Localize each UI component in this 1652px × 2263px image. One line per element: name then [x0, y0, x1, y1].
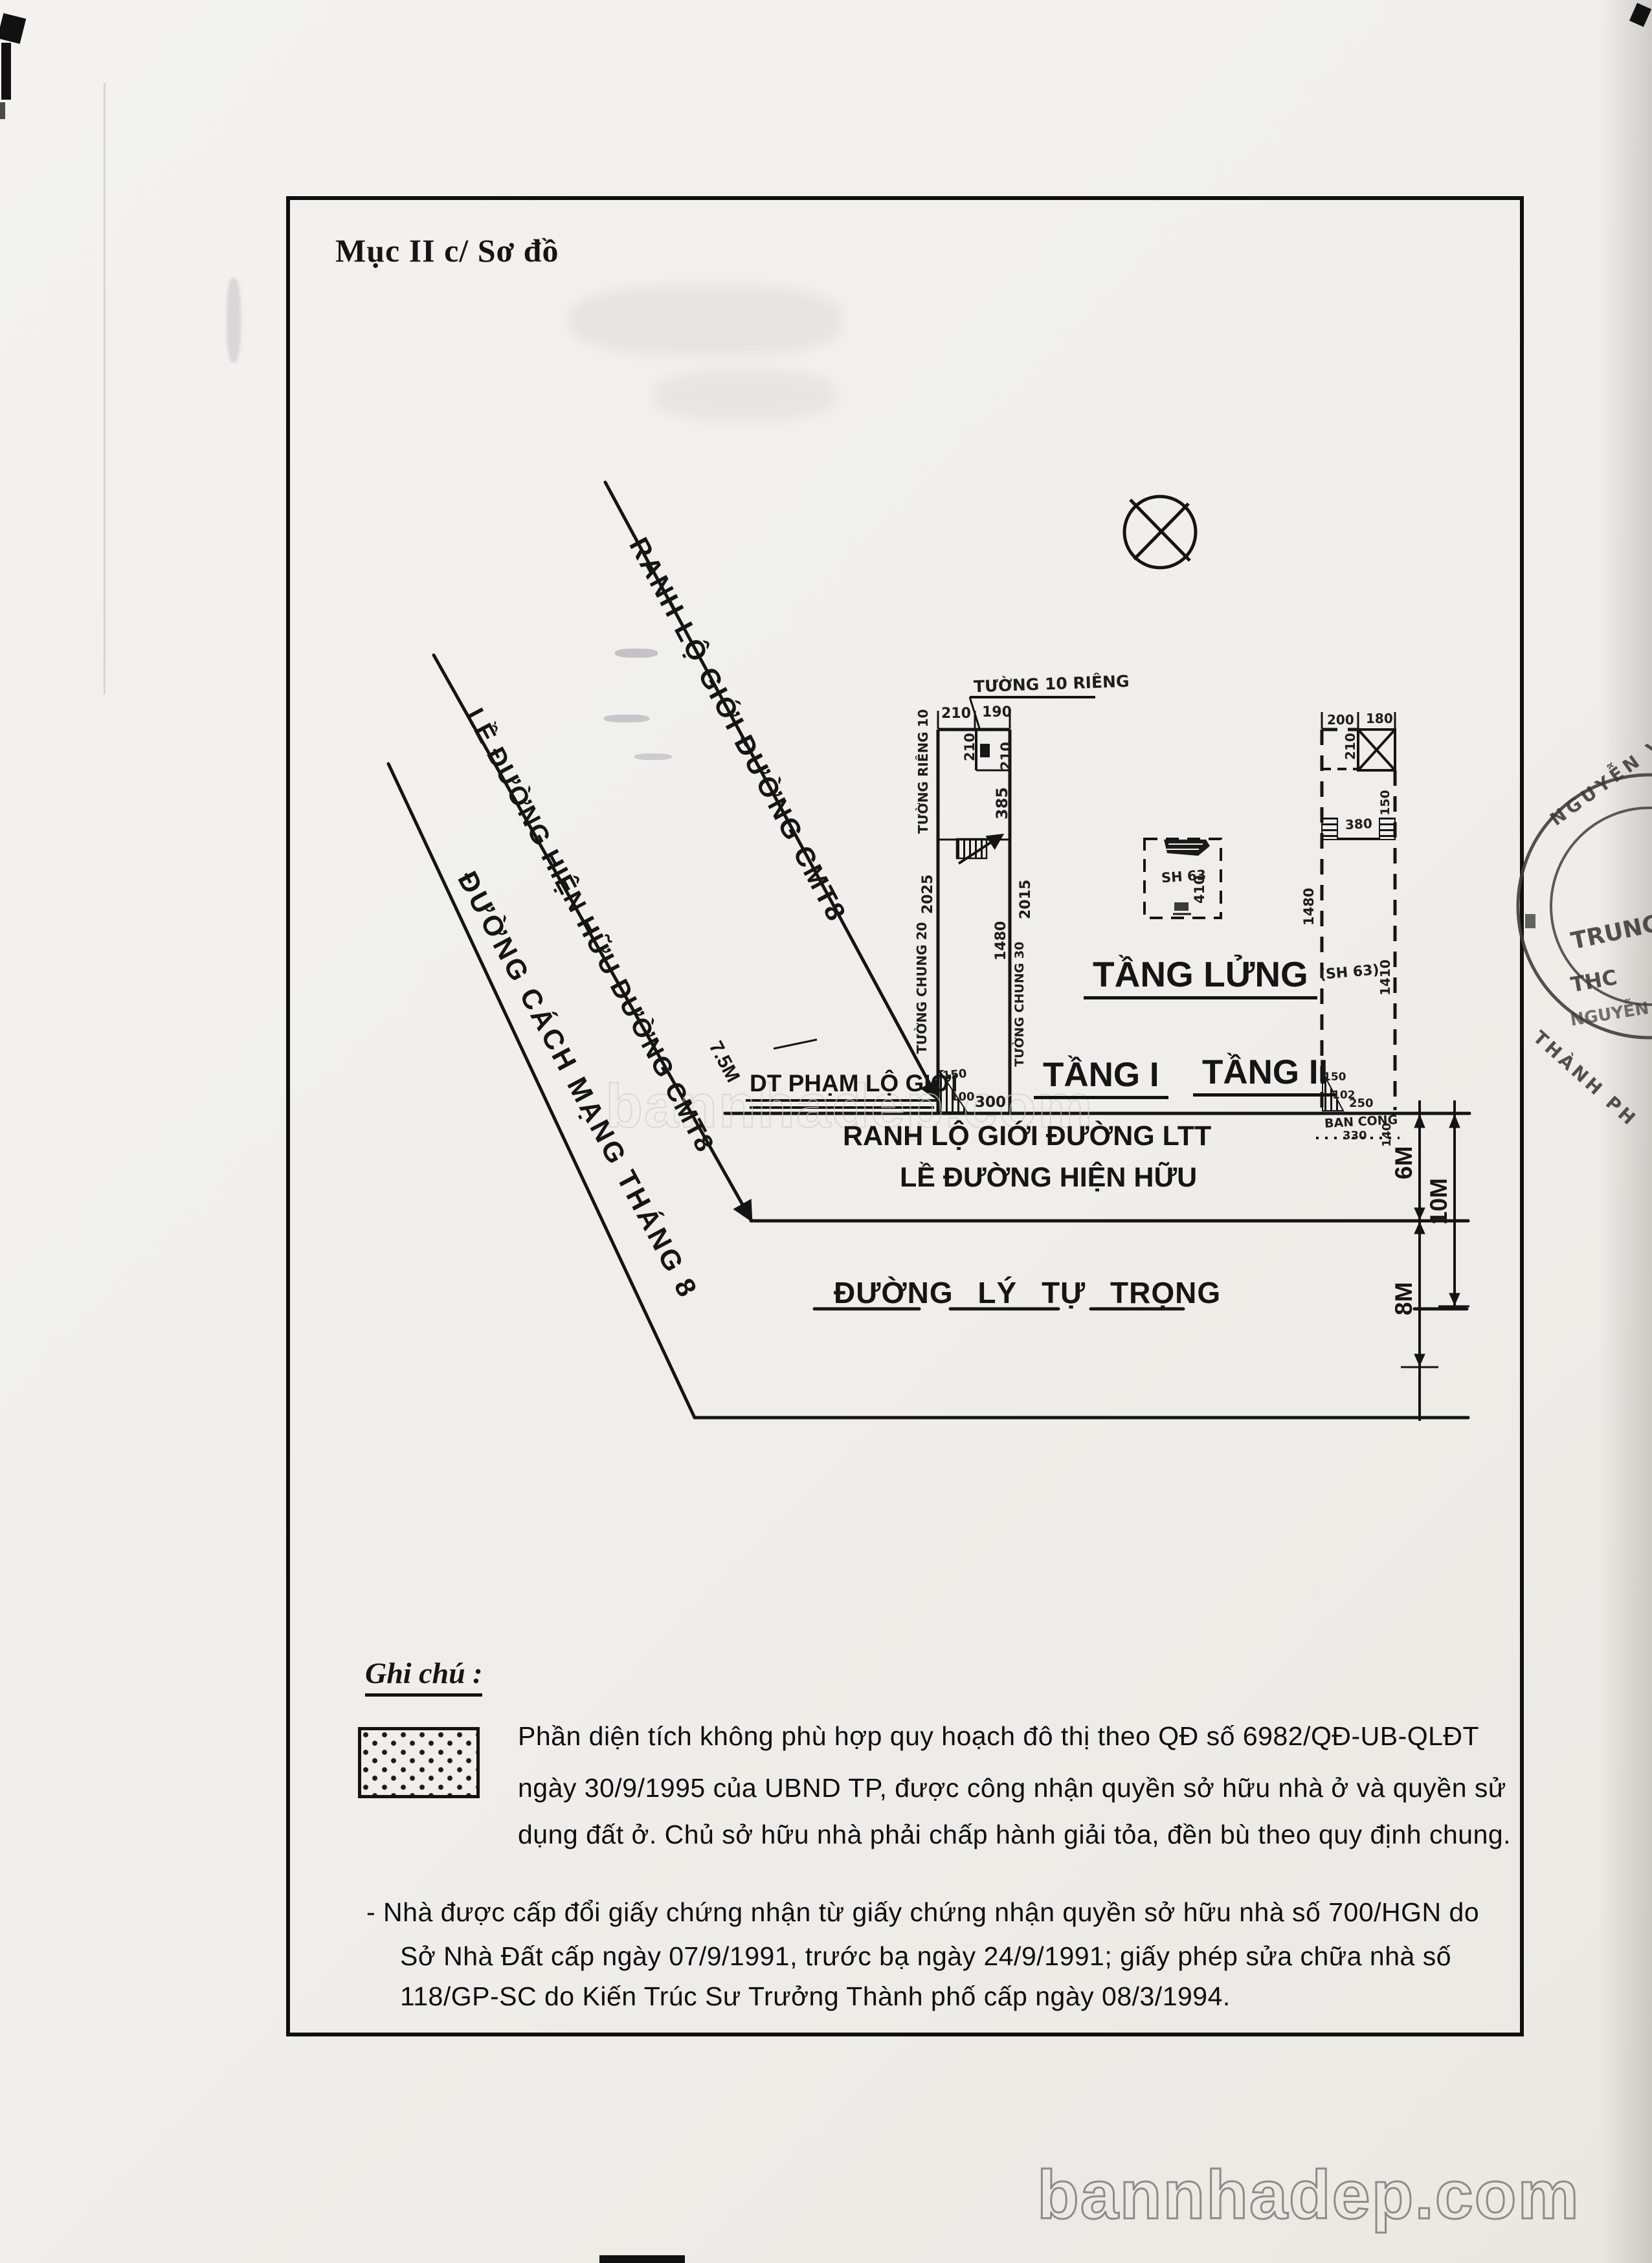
floor-label-2: TẦNG II	[1193, 1055, 1337, 1097]
floor2-dim-top-right: 180	[1366, 712, 1393, 725]
floor2-corner-dim-c: 250	[1349, 1098, 1374, 1109]
floor1-left-wall-note-upper: TƯỜNG RIÊNG 10	[917, 709, 930, 834]
floor-label-mezzanine: TẦNG LỬNG	[1084, 957, 1317, 999]
floor2-corner-dim-a: 150	[1323, 1072, 1346, 1083]
floor1-corner-dim-b: 100	[950, 1091, 975, 1103]
watermark-bottom: bannhadep.com	[1037, 2161, 1580, 2229]
notes-paragraph1-line2: ngày 30/9/1995 của UBND TP, được công nh…	[518, 1775, 1506, 1801]
road-width-label: 8M	[1392, 1282, 1416, 1315]
notes-paragraph1-line1: Phần diện tích không phù hợp quy hoạch đ…	[518, 1723, 1479, 1750]
floor1-dim-top-right: 190	[982, 706, 1012, 720]
north-marker-icon	[1124, 496, 1196, 568]
floor1-bottom-dim: 300	[975, 1095, 1006, 1110]
road-label-ltt-road: ĐƯỜNG LÝ TỰ TRỌNG	[834, 1278, 1221, 1308]
floor2-dim-mid: 380	[1345, 817, 1373, 831]
floor1-dim-right-upper: 210	[999, 742, 1013, 770]
floor2-left-dim: 1480	[1302, 888, 1316, 926]
floor2-right-dim: 1410	[1379, 959, 1392, 996]
floor1-left-dim: 2025	[921, 875, 935, 914]
mezzanine-dim: 410	[1193, 875, 1207, 904]
floor2-dim-right-upper: 150	[1379, 790, 1392, 816]
round-stamp-icon	[1518, 775, 1652, 1038]
floor1-right-outer-dim: 2015	[1019, 880, 1033, 919]
legend-hatch-swatch	[358, 1727, 480, 1798]
road-label-ltt-sidewalk: LỀ ĐƯỜNG HIỆN HỮU	[900, 1164, 1197, 1192]
floor1-dim-inner: 210	[963, 733, 977, 761]
violation-area-label: DT PHẠM LỘ GIỚI	[750, 1071, 957, 1095]
floor1-corner-dim-a: 150	[942, 1068, 967, 1082]
boundary-width-label: 10M	[1427, 1178, 1451, 1225]
floor-label-1: TẦNG I	[1034, 1058, 1168, 1099]
floor1-dim-top-left: 210	[941, 707, 971, 721]
floor2-balcony-dim-a: 330	[1343, 1130, 1367, 1142]
road-label-ltt-boundary: RANH LỘ GIỚI ĐƯỜNG LTT	[843, 1122, 1211, 1150]
floor1-right-dim: 1480	[994, 921, 1009, 961]
floor2-dim-inner: 210	[1344, 733, 1357, 760]
floor1-right-wall-note: TƯỜNG CHUNG 30	[1014, 942, 1026, 1067]
floor2-balcony-dim-b: 140	[1381, 1122, 1393, 1147]
notes-paragraph2-line3: 118/GP-SC do Kiến Trúc Sư Trưởng Thành p…	[400, 1983, 1231, 2010]
notes-paragraph2-line2: Sở Nhà Đất cấp ngày 07/9/1991, trước bạ …	[400, 1943, 1451, 1970]
floor1-left-wall-note-lower: TƯỜNG CHUNG 20	[915, 922, 928, 1054]
floor2-dim-top-left: 200	[1327, 713, 1354, 726]
scanned-document-page: Mục II c/ Sơ đồ	[0, 0, 1652, 2263]
notes-paragraph1-line3: dụng đất ở. Chủ sở hữu nhà phải chấp hàn…	[518, 1822, 1511, 1848]
sidewalk-width-label: 6M	[1392, 1146, 1416, 1179]
notes-paragraph2-line1: - Nhà được cấp đổi giấy chứng nhận từ gi…	[366, 1899, 1479, 1926]
floor1-dim-entry: 385	[994, 787, 1010, 819]
notes-heading: Ghi chú :	[365, 1658, 482, 1697]
